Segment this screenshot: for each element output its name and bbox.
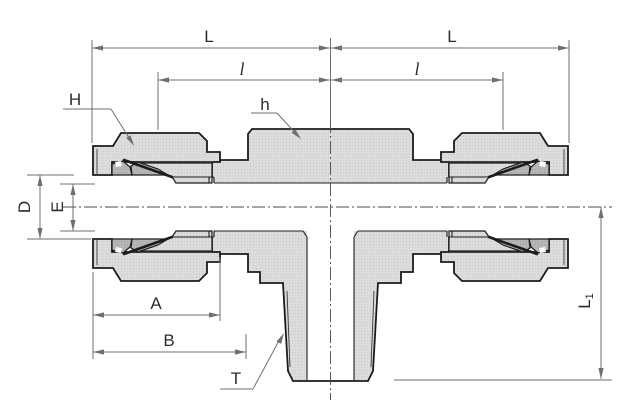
dimension-B: B [93, 331, 246, 359]
dimension-L-right: L [331, 27, 569, 143]
dimension-L-left: L [92, 27, 330, 143]
label-h: h [260, 95, 269, 114]
label-B: B [163, 331, 174, 350]
dimension-l-left: l [158, 59, 330, 130]
label-D: D [15, 201, 34, 213]
label-L-right: L [447, 27, 456, 46]
drawing-canvas: L L l l H h D [0, 0, 629, 412]
dimension-E: E [48, 184, 95, 231]
label-L-left: L [204, 27, 213, 46]
label-L1: L1 [575, 293, 596, 309]
dimension-l-right: l [331, 59, 503, 130]
label-l-right: l [414, 59, 419, 79]
label-E: E [48, 201, 67, 212]
dimension-T: T [220, 333, 284, 389]
label-H: H [69, 90, 81, 109]
label-T: T [231, 369, 241, 388]
label-A: A [150, 294, 162, 313]
tee-fitting-technical-drawing: L L l l H h D [0, 0, 629, 412]
label-l-left: l [239, 59, 244, 79]
